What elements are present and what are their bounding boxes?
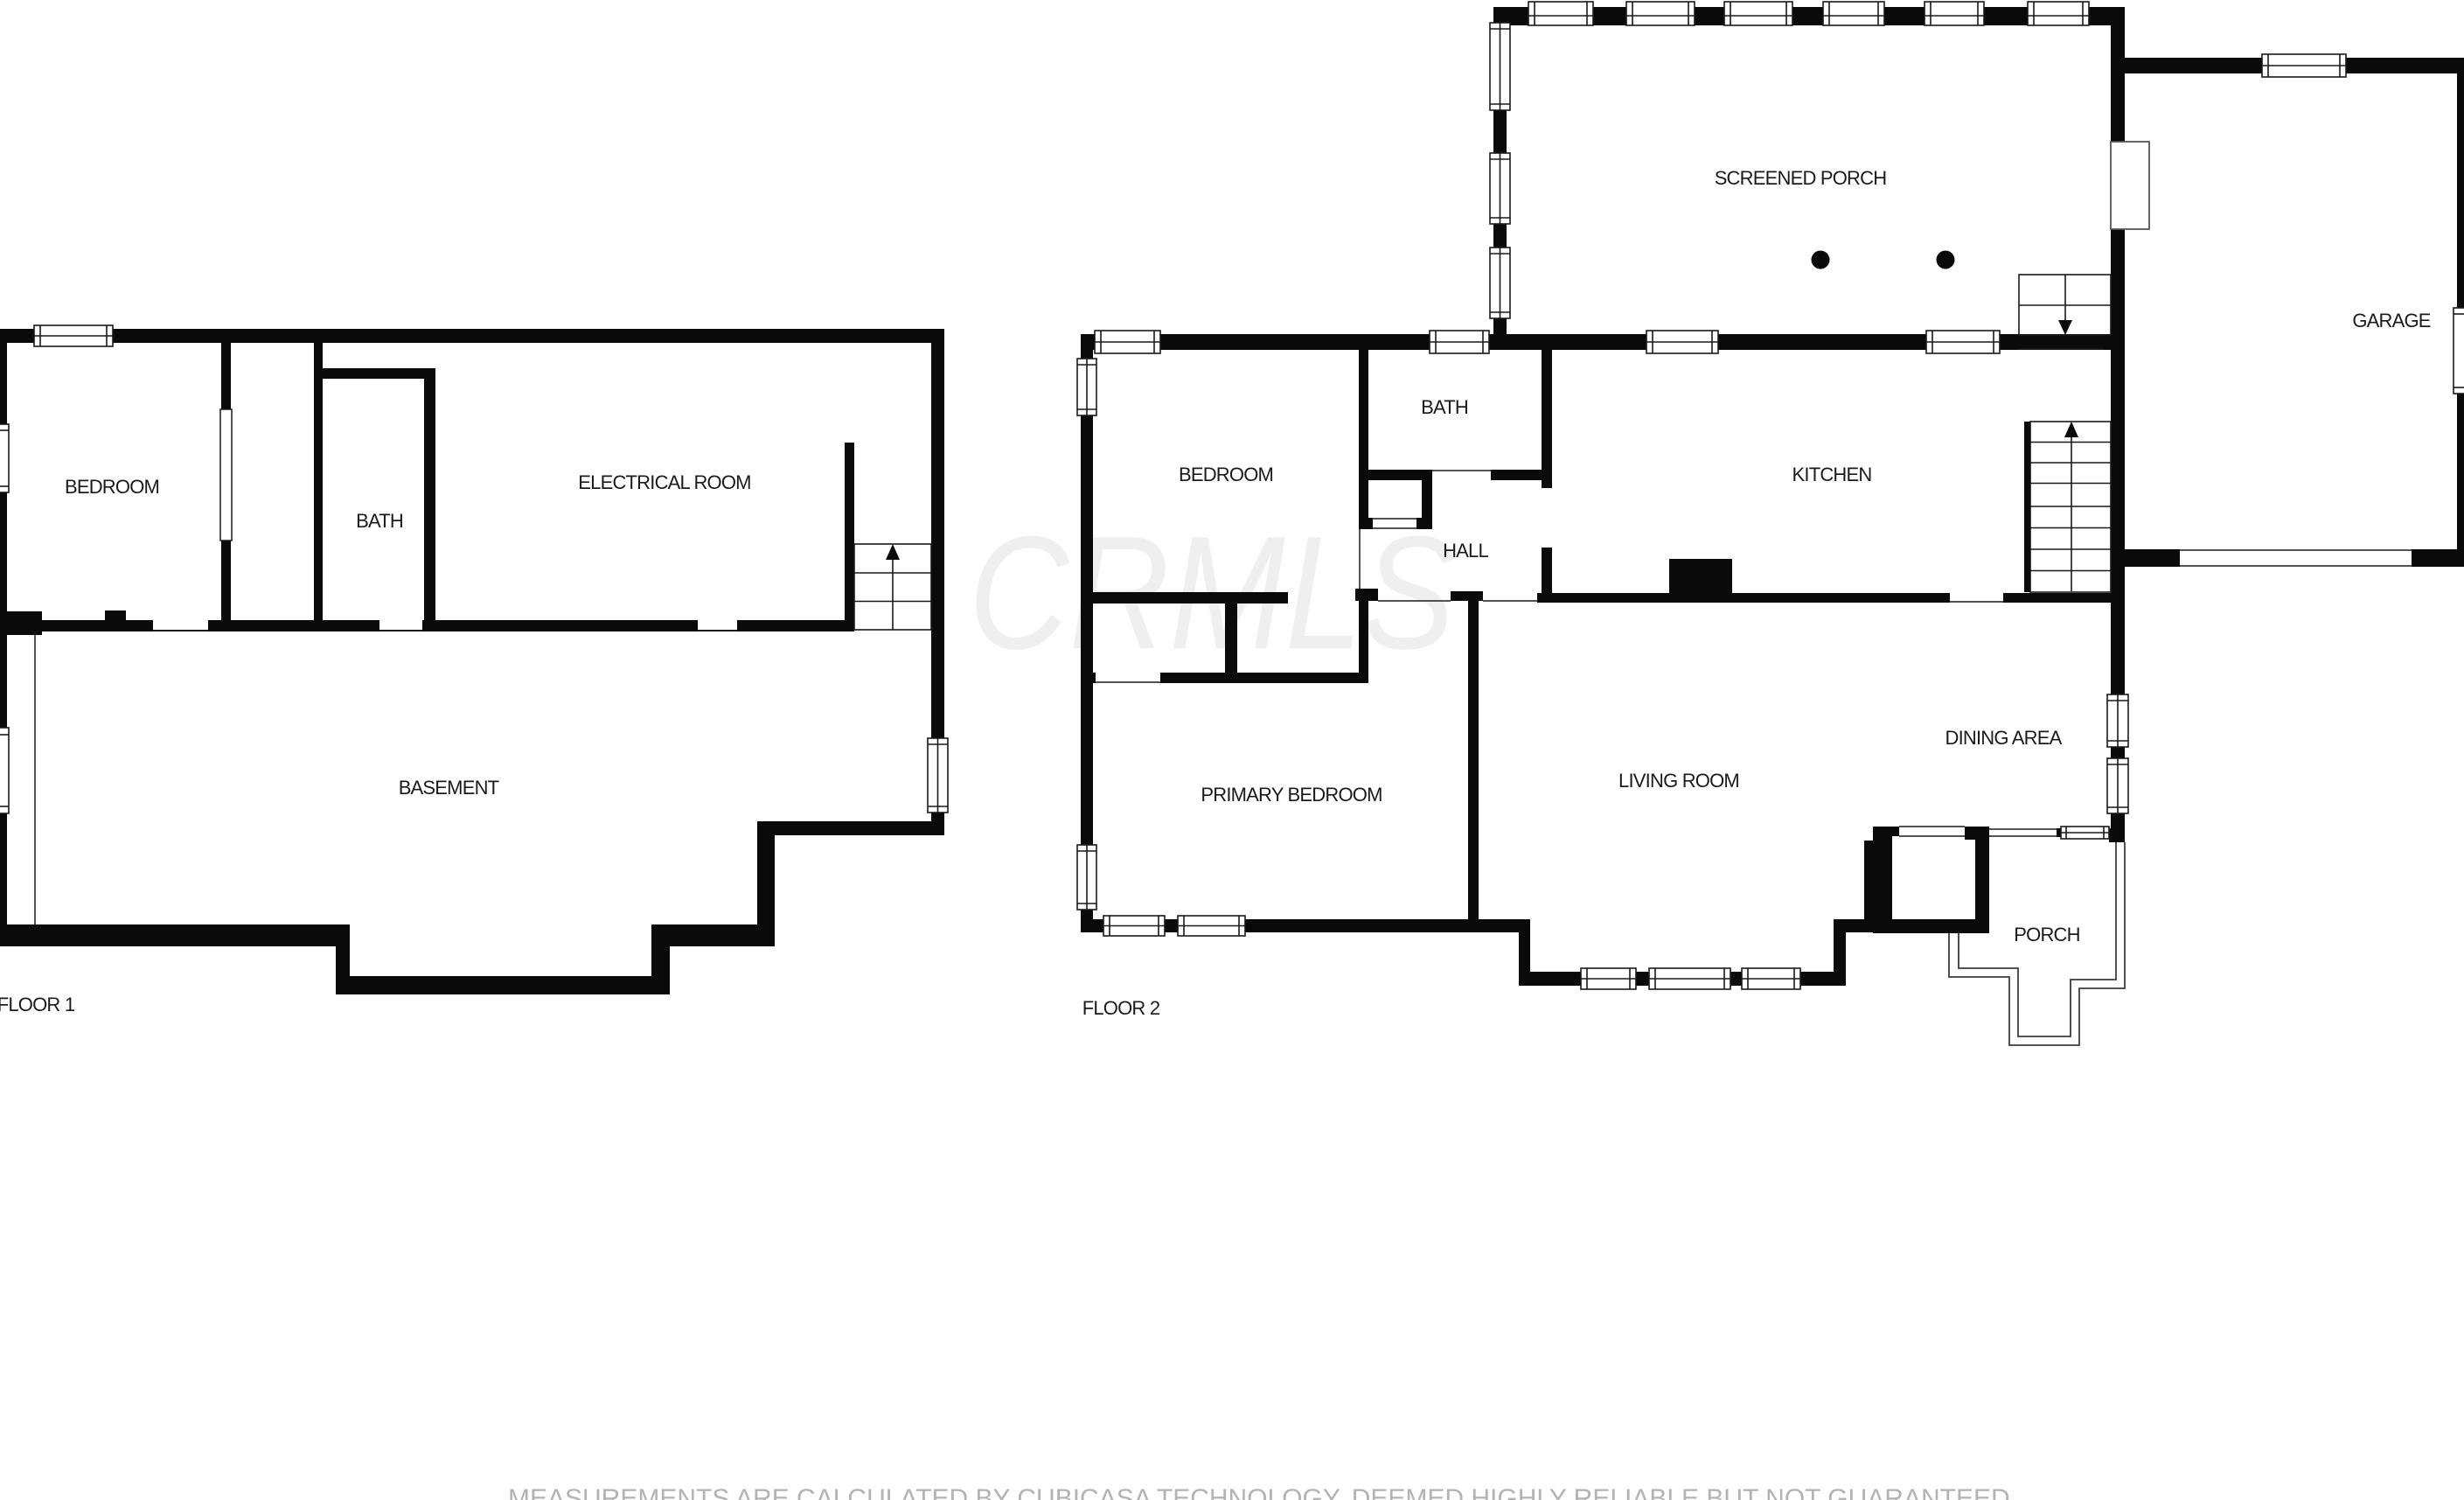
svg-text:BEDROOM: BEDROOM: [65, 476, 159, 498]
svg-text:BATH: BATH: [1421, 396, 1468, 418]
svg-text:HALL: HALL: [1443, 540, 1488, 562]
svg-text:KITCHEN: KITCHEN: [1792, 464, 1872, 485]
svg-text:MEASUREMENTS ARE CALCULATED BY: MEASUREMENTS ARE CALCULATED BY CUBICASA …: [508, 1484, 2017, 1500]
svg-text:GARAGE: GARAGE: [2352, 310, 2430, 331]
svg-text:PORCH: PORCH: [2014, 924, 2079, 945]
svg-text:SCREENED PORCH: SCREENED PORCH: [1715, 167, 1887, 189]
svg-text:BATH: BATH: [356, 510, 403, 532]
svg-text:DINING AREA: DINING AREA: [1945, 727, 2062, 749]
svg-text:BEDROOM: BEDROOM: [1179, 464, 1273, 485]
svg-text:ELECTRICAL ROOM: ELECTRICAL ROOM: [578, 471, 750, 493]
svg-text:BASEMENT: BASEMENT: [399, 777, 499, 799]
svg-text:FLOOR 2: FLOOR 2: [1082, 997, 1160, 1019]
svg-text:PRIMARY BEDROOM: PRIMARY BEDROOM: [1201, 784, 1382, 806]
svg-text:LIVING ROOM: LIVING ROOM: [1618, 770, 1739, 792]
svg-text:FLOOR 1: FLOOR 1: [0, 994, 75, 1015]
